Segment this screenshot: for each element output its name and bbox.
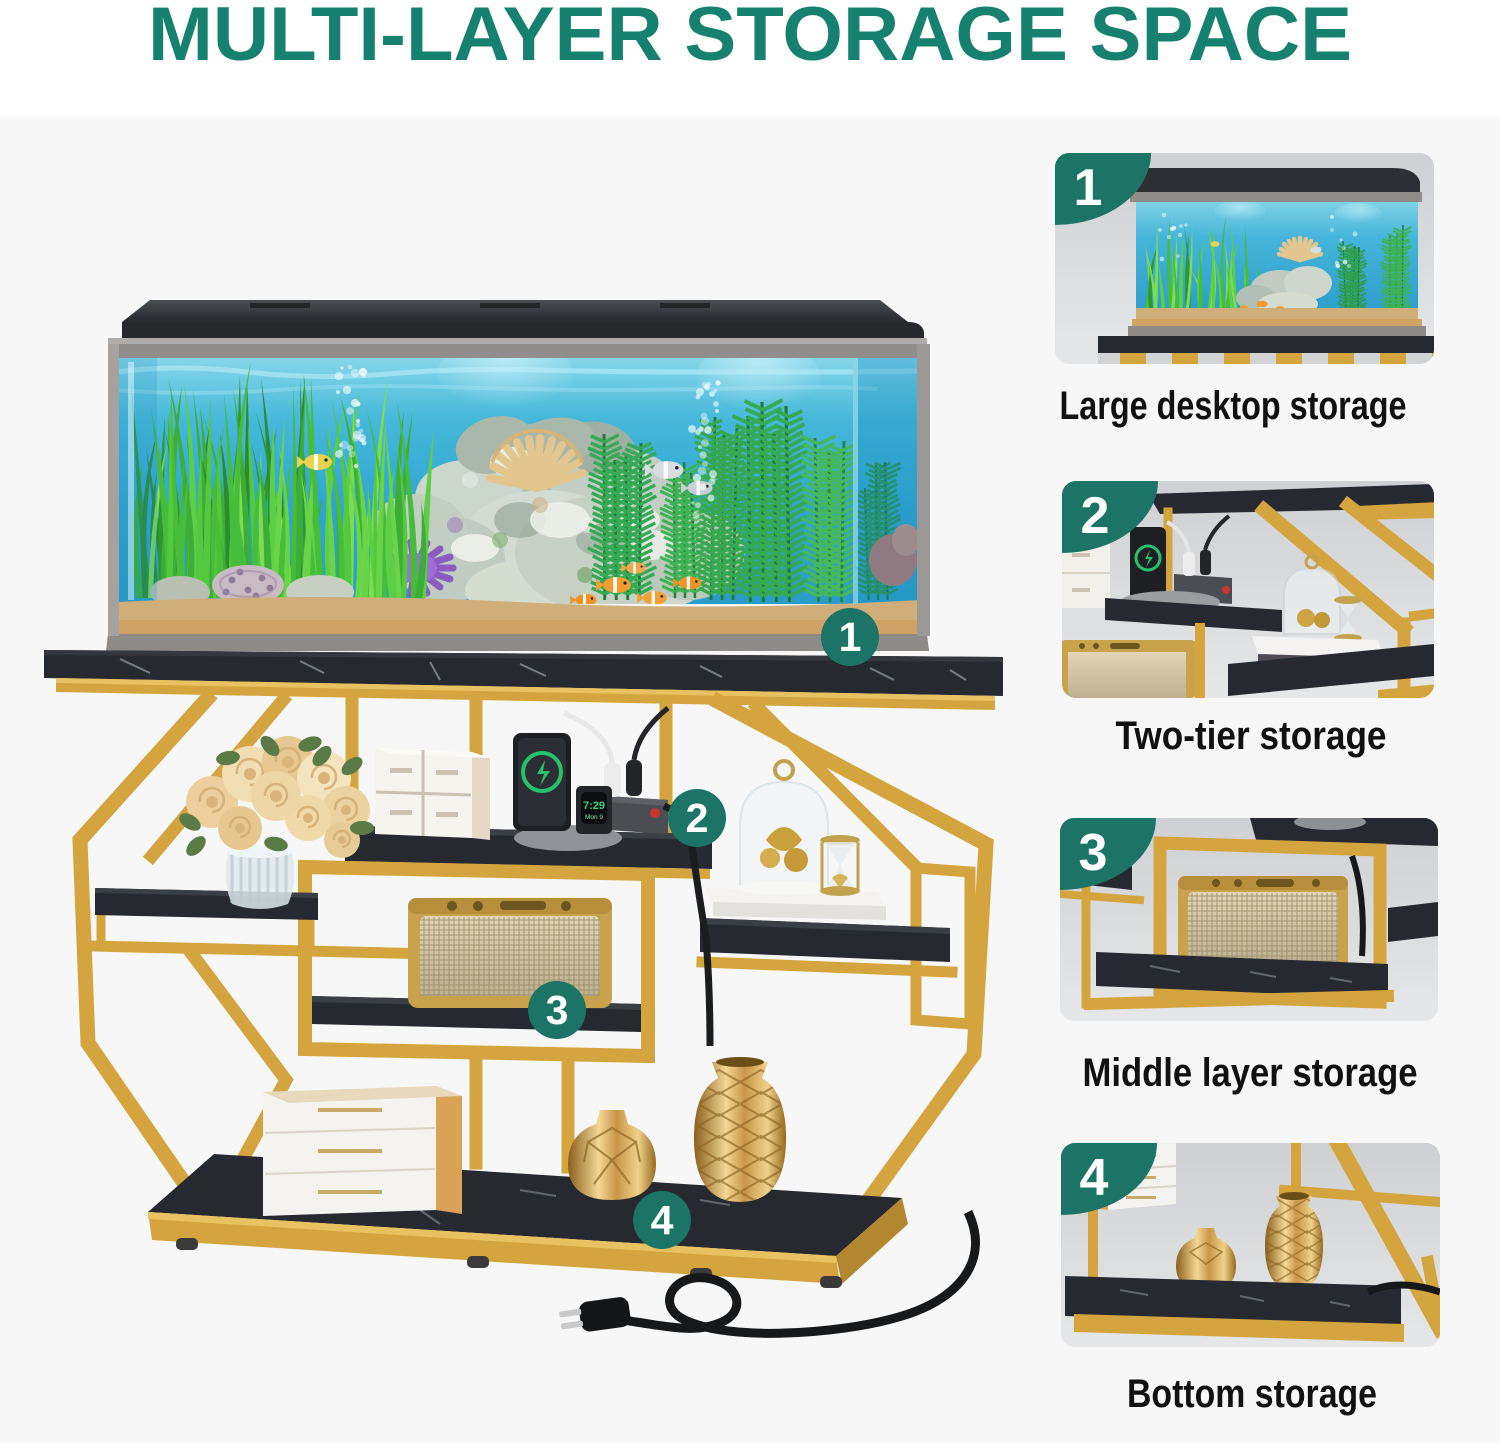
svg-text:3: 3 [546,987,569,1033]
svg-text:3: 3 [1079,824,1108,882]
svg-text:Two-tier storage: Two-tier storage [1116,714,1387,758]
svg-text:Large desktop storage: Large desktop storage [1060,384,1407,428]
svg-text:2: 2 [686,795,709,841]
svg-text:2: 2 [1081,487,1110,545]
svg-text:4: 4 [1080,1149,1109,1207]
svg-text:MULTI-LAYER STORAGE SPACE: MULTI-LAYER STORAGE SPACE [148,0,1352,77]
svg-text:7:29: 7:29 [583,800,605,812]
svg-text:Middle layer storage: Middle layer storage [1083,1051,1418,1095]
svg-text:Mon 9: Mon 9 [585,814,603,821]
svg-text:1: 1 [1074,159,1103,217]
svg-text:1: 1 [839,614,862,660]
svg-text:Bottom storage: Bottom storage [1127,1372,1377,1416]
svg-text:4: 4 [651,1197,674,1243]
